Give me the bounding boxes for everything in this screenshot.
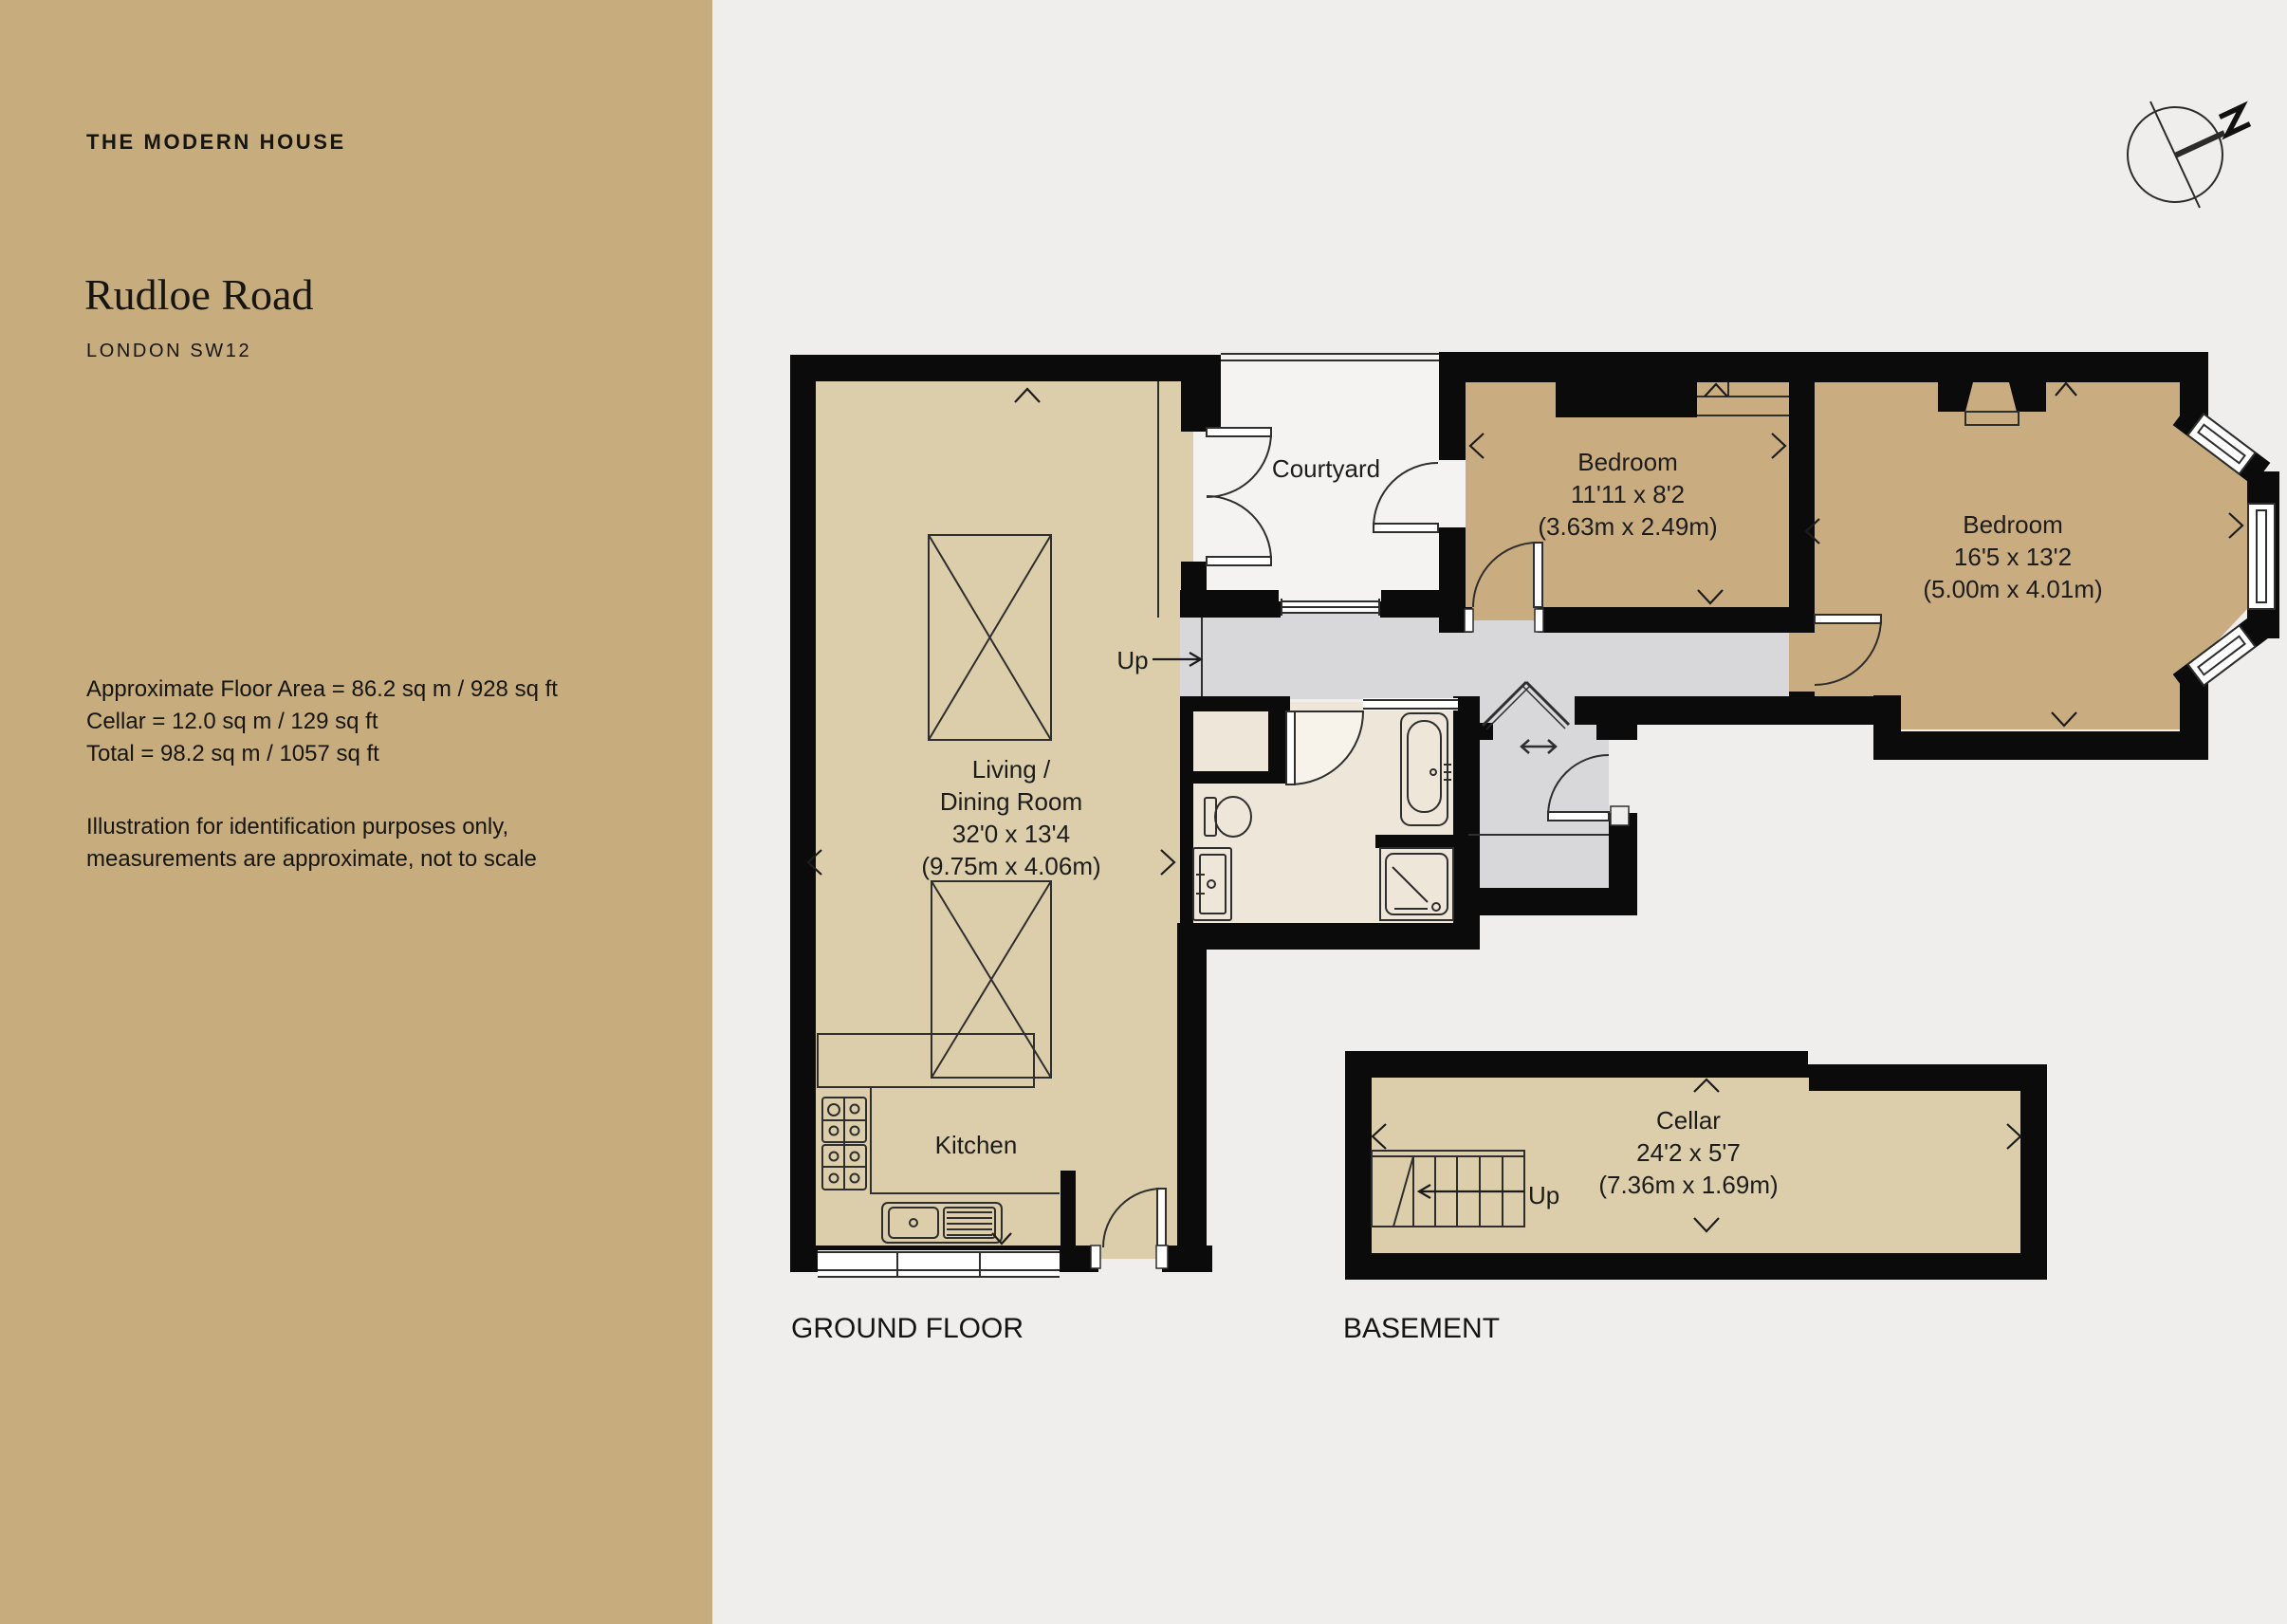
svg-text:Living /: Living / xyxy=(972,755,1051,784)
svg-text:Courtyard: Courtyard xyxy=(1272,454,1380,483)
svg-text:11'11 x 8'2: 11'11 x 8'2 xyxy=(1571,480,1685,508)
svg-text:32'0 x 13'4: 32'0 x 13'4 xyxy=(952,820,1070,848)
svg-text:24'2 x 5'7: 24'2 x 5'7 xyxy=(1636,1138,1741,1167)
svg-text:GROUND FLOOR: GROUND FLOOR xyxy=(791,1313,1024,1344)
svg-text:BASEMENT: BASEMENT xyxy=(1343,1313,1500,1344)
svg-text:(5.00m x 4.01m): (5.00m x 4.01m) xyxy=(1923,575,2102,603)
svg-text:(9.75m x 4.06m): (9.75m x 4.06m) xyxy=(921,852,1100,880)
svg-text:(3.63m x 2.49m): (3.63m x 2.49m) xyxy=(1538,512,1717,541)
svg-text:Bedroom: Bedroom xyxy=(1963,510,2063,539)
svg-text:Up: Up xyxy=(1116,646,1148,674)
svg-text:16'5 x 13'2: 16'5 x 13'2 xyxy=(1954,543,2072,571)
svg-text:Dining Room: Dining Room xyxy=(940,787,1082,816)
svg-text:Up: Up xyxy=(1528,1181,1559,1209)
svg-text:Kitchen: Kitchen xyxy=(935,1131,1018,1159)
svg-text:Bedroom: Bedroom xyxy=(1577,448,1678,476)
svg-text:(7.36m x 1.69m): (7.36m x 1.69m) xyxy=(1598,1171,1778,1199)
svg-text:Cellar: Cellar xyxy=(1656,1106,1721,1135)
